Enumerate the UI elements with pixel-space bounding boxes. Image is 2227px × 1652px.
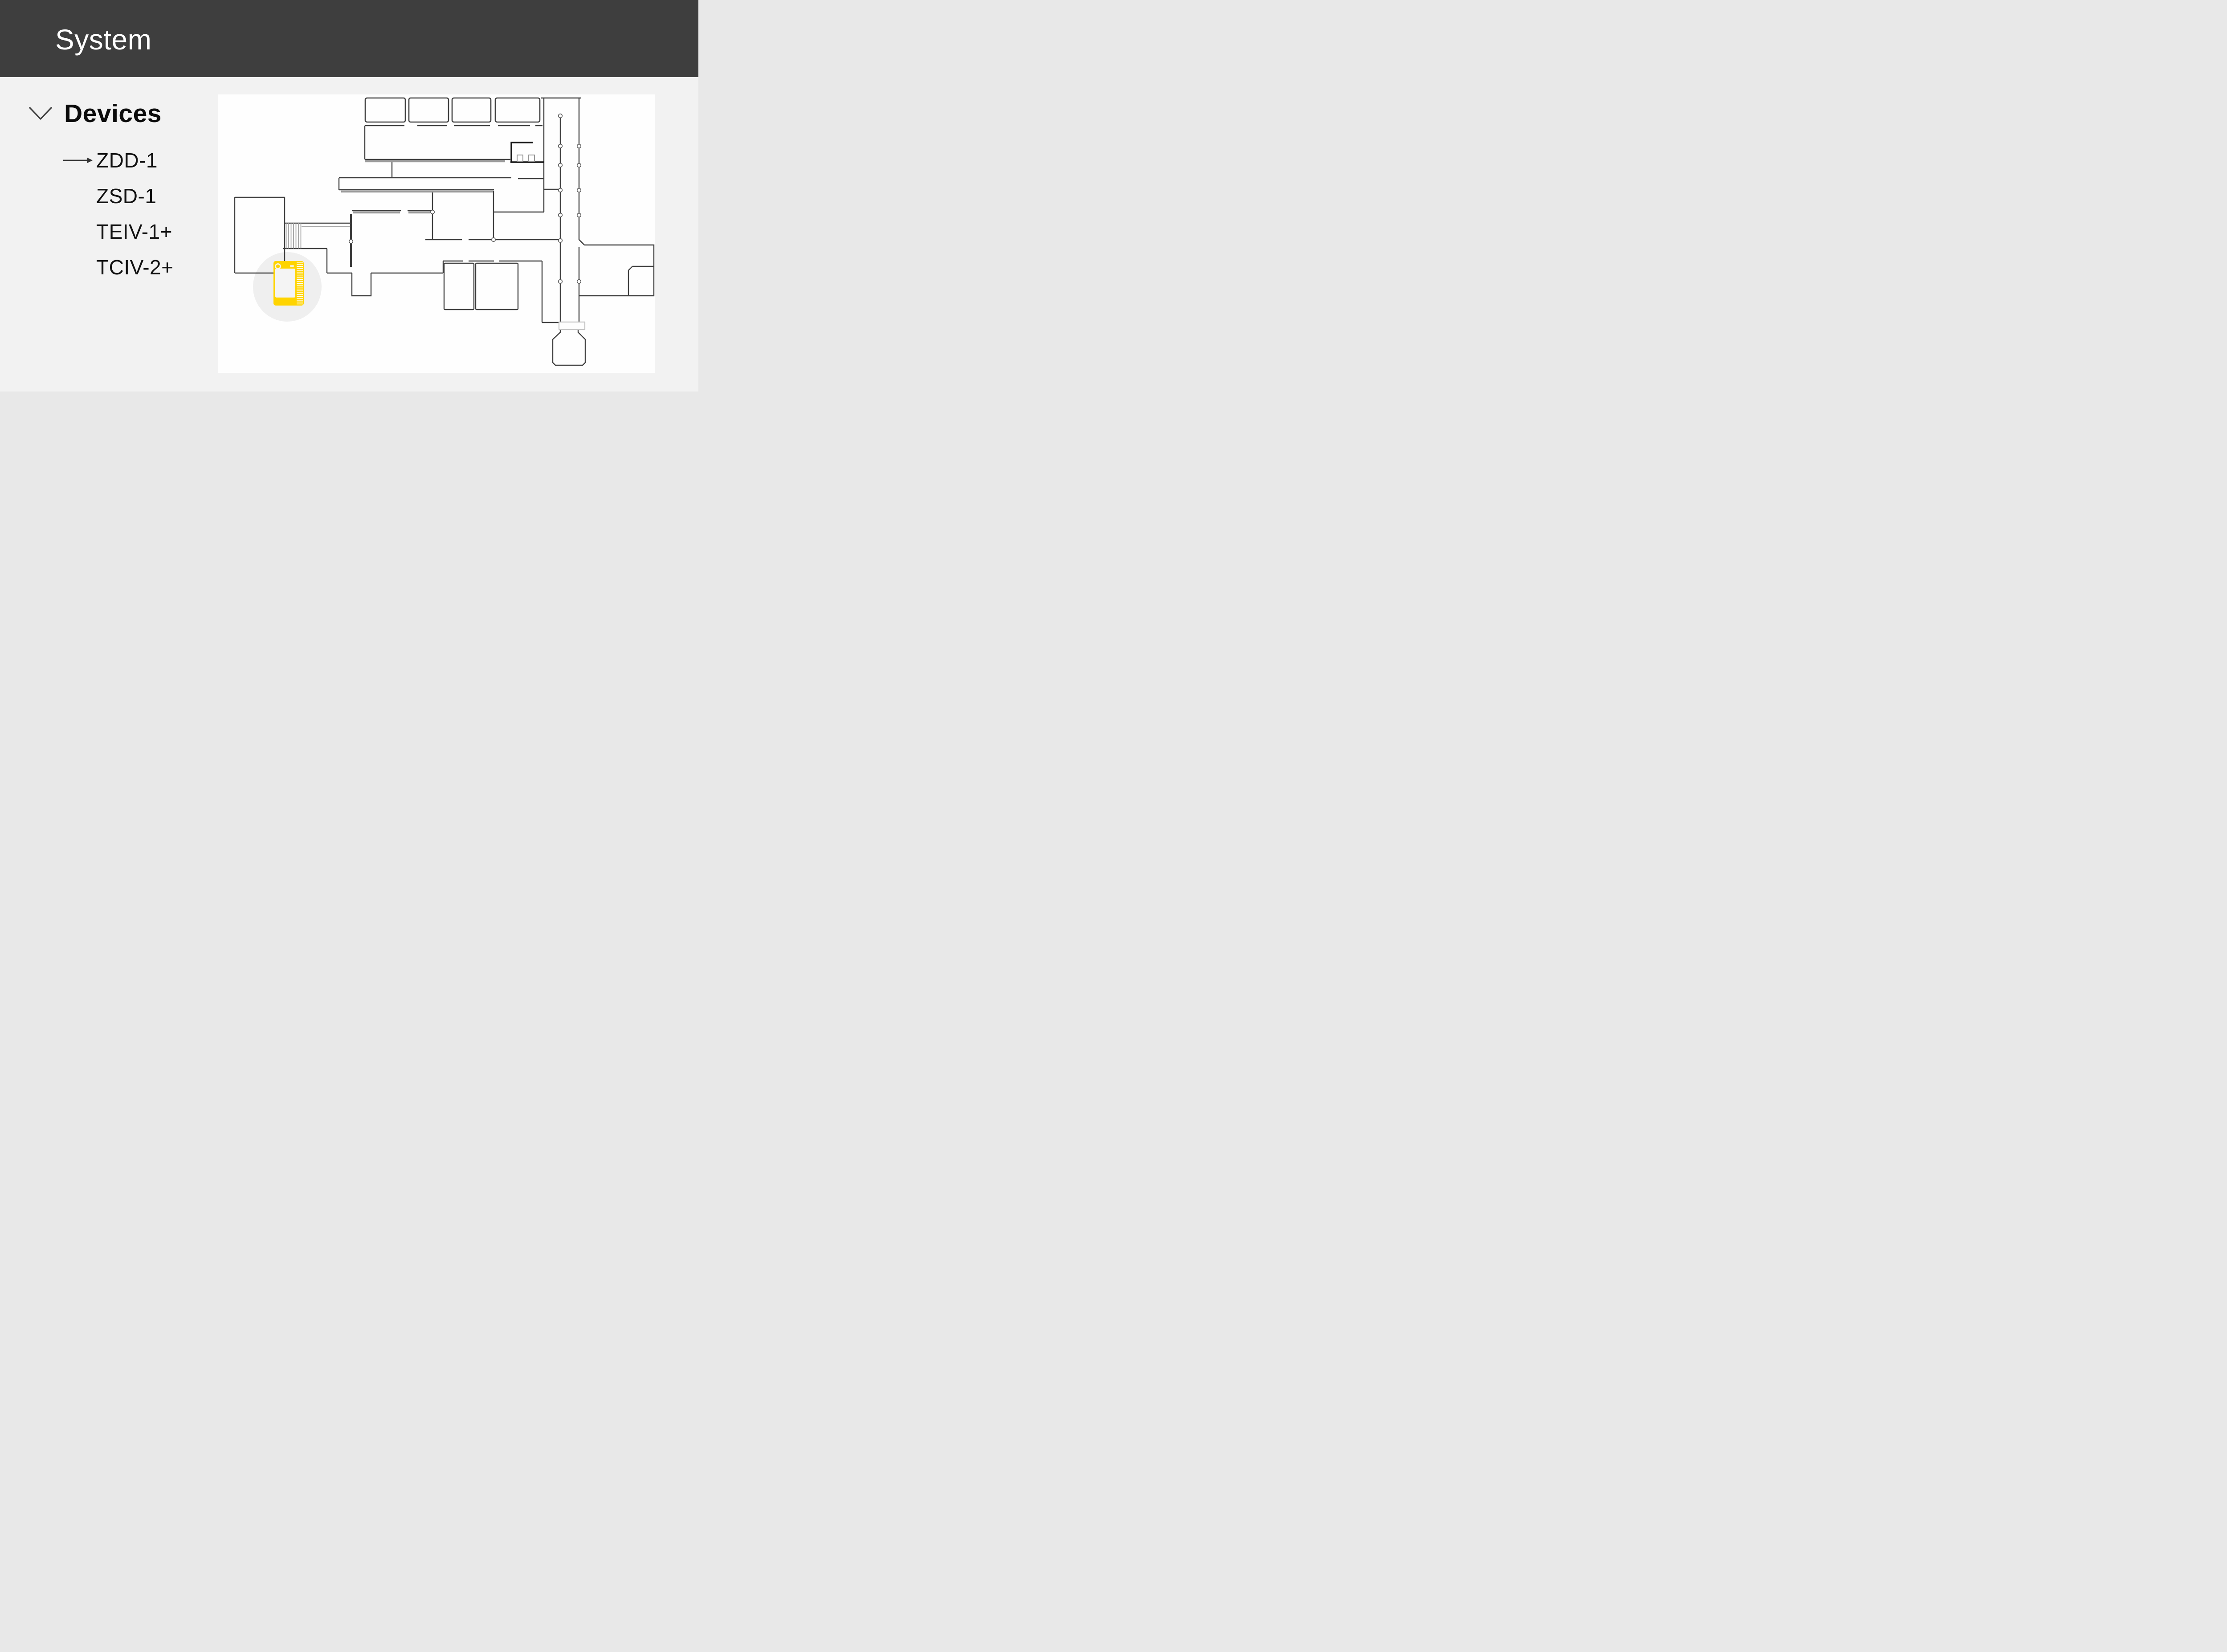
walls-gray-bands (341, 161, 505, 212)
closet-fixtures (517, 155, 534, 162)
floor-plan-panel (218, 94, 655, 373)
closet-walls (510, 143, 544, 162)
page-title: System (55, 0, 151, 77)
device-list-item-teiv1[interactable]: TEIV-1+ (0, 214, 214, 249)
device-marker[interactable] (273, 261, 304, 306)
device-item-label: TEIV-1+ (96, 214, 172, 249)
floor-plan (218, 94, 655, 373)
corridor-crossing-band (559, 322, 585, 330)
corridor-door-nodes (349, 114, 581, 284)
device-list-item-zdd1[interactable]: ZDD-1 (0, 143, 214, 178)
room-outlines-bottom (444, 263, 518, 310)
device-item-label: TCIV-2+ (96, 249, 174, 285)
device-item-label: ZSD-1 (96, 178, 156, 214)
app-window: System Devices ZDD-1 ZSD-1 TEIV-1+ TCIV-… (0, 0, 698, 392)
device-item-label: ZDD-1 (96, 143, 158, 178)
staircase-hatch (286, 223, 351, 249)
device-indicator-dash (290, 265, 294, 267)
header-bar: System (0, 0, 698, 77)
device-screen (275, 269, 295, 298)
chevron-down-icon (28, 106, 53, 121)
devices-section-toggle[interactable]: Devices (28, 98, 162, 130)
room-outlines-top (365, 98, 540, 122)
device-list: ZDD-1 ZSD-1 TEIV-1+ TCIV-2+ (0, 143, 214, 285)
devices-section-label: Devices (64, 99, 162, 128)
device-list-item-tciv2[interactable]: TCIV-2+ (0, 249, 214, 285)
device-list-item-zsd1[interactable]: ZSD-1 (0, 178, 214, 214)
arrow-right-icon (63, 157, 93, 164)
walls-dark (235, 98, 654, 365)
